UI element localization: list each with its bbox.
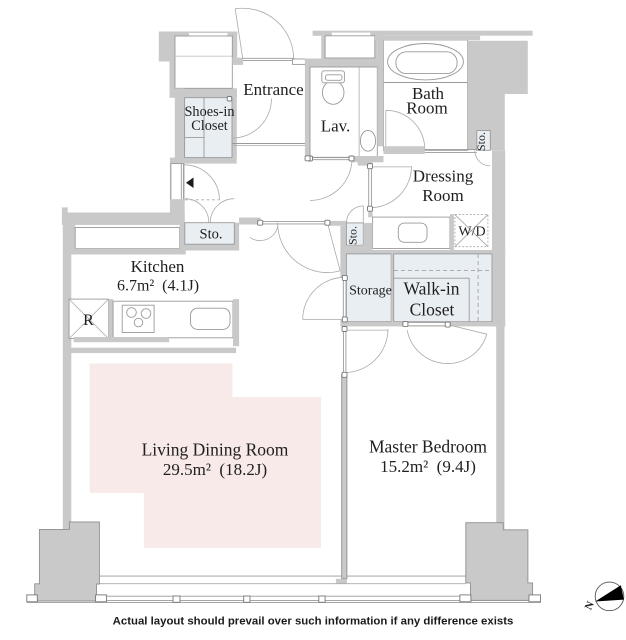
svg-text:Sto.: Sto. (474, 132, 488, 151)
svg-text:Actual layout should prevail o: Actual layout should prevail over such i… (113, 616, 514, 628)
svg-text:Closet: Closet (410, 299, 455, 319)
svg-text:Entrance: Entrance (243, 80, 303, 99)
svg-text:Living Dining Room: Living Dining Room (142, 440, 289, 460)
svg-text:29.5m² (18.2J): 29.5m² (18.2J) (163, 460, 267, 479)
svg-text:Room: Room (422, 186, 464, 205)
svg-text:Sto.: Sto. (346, 226, 360, 245)
svg-text:Room: Room (406, 98, 448, 117)
svg-text:Walk-in: Walk-in (404, 279, 460, 299)
svg-text:Lav.: Lav. (321, 117, 351, 136)
svg-text:Storage: Storage (349, 283, 392, 298)
svg-text:Master Bedroom: Master Bedroom (369, 437, 487, 457)
svg-text:W/D: W/D (458, 225, 485, 240)
svg-text:Closet: Closet (191, 118, 228, 134)
svg-text:15.2m² (9.4J): 15.2m² (9.4J) (380, 457, 476, 476)
svg-text:R: R (83, 312, 94, 329)
svg-text:6.7m² (4.1J): 6.7m² (4.1J) (117, 278, 199, 295)
svg-text:Kitchen: Kitchen (131, 257, 185, 276)
svg-text:Dressing: Dressing (413, 166, 474, 185)
svg-text:Sto.: Sto. (200, 226, 223, 242)
